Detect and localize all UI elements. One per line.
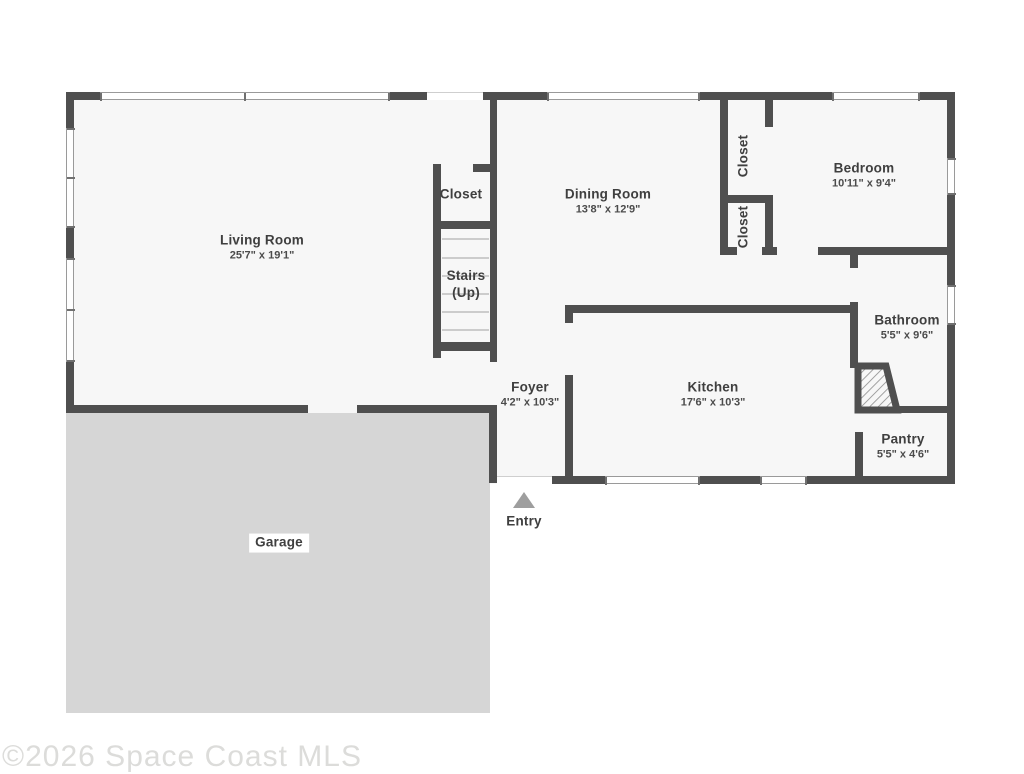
- window-cap: [948, 193, 956, 195]
- room-dimensions: 4'2" x 10'3": [501, 397, 559, 411]
- window-cap: [948, 285, 956, 287]
- window-cap: [760, 477, 762, 485]
- window: [947, 158, 955, 195]
- room-name: Pantry: [877, 432, 929, 449]
- wall-segment: [762, 247, 777, 255]
- wall-segment: [473, 164, 490, 172]
- window-cap: [948, 323, 956, 325]
- room-name: Foyer: [501, 380, 559, 397]
- window-cap: [244, 93, 246, 101]
- window: [605, 476, 700, 484]
- floor-plan-canvas: Living Room25'7" x 19'1"ClosetStairs(Up)…: [0, 0, 1024, 768]
- stair-tread: [442, 238, 489, 240]
- wall-segment: [720, 247, 737, 255]
- window-cap: [918, 93, 920, 101]
- wall-segment: [390, 92, 427, 100]
- room-name: Bathroom: [874, 313, 939, 330]
- wall-segment: [700, 92, 832, 100]
- room-name: Garage: [249, 534, 309, 553]
- room-dimensions: 13'8" x 12'9": [565, 204, 651, 218]
- room-label-dining-room: Dining Room13'8" x 12'9": [565, 187, 651, 218]
- room-dimensions: 17'6" x 10'3": [681, 397, 746, 411]
- entry-label: Entry: [506, 514, 542, 531]
- window-cap: [67, 128, 75, 130]
- mls-watermark: ©2026 Space Coast MLS: [2, 740, 362, 774]
- door-opening: [497, 476, 552, 484]
- room-label-stairs: Stairs(Up): [447, 268, 486, 302]
- garage-area: [66, 413, 490, 713]
- room-dimensions: 10'11" x 9'4": [832, 178, 896, 192]
- stair-tread: [442, 329, 489, 331]
- wall-segment: [66, 405, 308, 413]
- wall-segment: [66, 100, 74, 128]
- window: [760, 476, 807, 484]
- room-label-foyer: Foyer4'2" x 10'3": [501, 380, 559, 411]
- room-name: Closet: [440, 187, 482, 204]
- window-cap: [698, 93, 700, 101]
- wall-segment: [433, 164, 440, 172]
- room-label-garage: Garage: [249, 534, 309, 553]
- window-cap: [698, 477, 700, 485]
- stair-tread: [442, 257, 489, 259]
- wall-segment: [433, 342, 497, 351]
- wall-segment: [66, 228, 74, 258]
- room-label-bedroom: Bedroom10'11" x 9'4": [832, 161, 896, 192]
- wall-segment: [850, 255, 858, 268]
- window: [100, 92, 390, 100]
- room-name: Bedroom: [832, 161, 896, 178]
- window: [947, 285, 955, 325]
- wall-segment: [565, 305, 573, 323]
- wall-segment: [489, 405, 497, 483]
- window-cap: [67, 309, 75, 311]
- window-cap: [605, 477, 607, 485]
- window-cap: [832, 93, 834, 101]
- wall-segment: [765, 203, 773, 248]
- room-label-pantry: Pantry5'5" x 4'6": [877, 432, 929, 463]
- window-cap: [67, 258, 75, 260]
- window-cap: [100, 93, 102, 101]
- window: [66, 128, 74, 228]
- wall-segment: [947, 195, 955, 285]
- room-name: Dining Room: [565, 187, 651, 204]
- window-cap: [948, 158, 956, 160]
- wall-segment: [490, 92, 497, 362]
- room-dimensions: 5'5" x 9'6": [874, 330, 939, 344]
- wall-segment: [855, 432, 863, 476]
- room-label-hall-closet-lower: Closet: [736, 206, 753, 248]
- wall-segment: [947, 325, 955, 483]
- wall-segment: [818, 247, 955, 255]
- door-opening: [427, 92, 483, 100]
- window-cap: [67, 226, 75, 228]
- wall-segment: [807, 476, 955, 484]
- room-name: Entry: [506, 514, 542, 531]
- window: [832, 92, 920, 100]
- wall-segment: [567, 305, 850, 313]
- wall-segment: [765, 100, 773, 127]
- wall-segment: [947, 100, 955, 158]
- room-dimensions: 5'5" x 4'6": [877, 449, 929, 463]
- wall-segment: [552, 476, 605, 484]
- wall-segment: [565, 375, 573, 476]
- room-label-stairs-closet: Closet: [440, 187, 482, 204]
- opening-threshold-line: [497, 476, 552, 477]
- room-name: Closet: [736, 135, 753, 177]
- window-cap: [805, 477, 807, 485]
- opening-threshold-line: [427, 92, 483, 93]
- wall-segment: [700, 476, 760, 484]
- window-cap: [547, 93, 549, 101]
- room-dimensions: 25'7" x 19'1": [220, 250, 304, 264]
- room-label-kitchen: Kitchen17'6" x 10'3": [681, 380, 746, 411]
- room-label-hall-closet-upper: Closet: [736, 135, 753, 177]
- window: [66, 258, 74, 362]
- wall-segment: [441, 221, 490, 229]
- wall-segment: [920, 92, 955, 100]
- window-cap: [388, 93, 390, 101]
- room-name: Kitchen: [681, 380, 746, 397]
- stairs-direction: (Up): [447, 285, 486, 302]
- wall-segment: [720, 195, 773, 203]
- wall-segment: [357, 405, 497, 413]
- wall-segment: [720, 100, 728, 255]
- room-name: Living Room: [220, 233, 304, 250]
- corner-fixture-hatch: [850, 358, 906, 418]
- wall-segment: [66, 92, 100, 100]
- room-label-living-room: Living Room25'7" x 19'1": [220, 233, 304, 264]
- room-name: Stairs: [447, 268, 486, 285]
- window: [547, 92, 700, 100]
- window-cap: [67, 360, 75, 362]
- window-cap: [67, 177, 75, 179]
- stair-tread: [442, 311, 489, 313]
- entry-arrow-icon: [513, 492, 535, 508]
- room-label-bathroom: Bathroom5'5" x 9'6": [874, 313, 939, 344]
- room-name: Closet: [736, 206, 753, 248]
